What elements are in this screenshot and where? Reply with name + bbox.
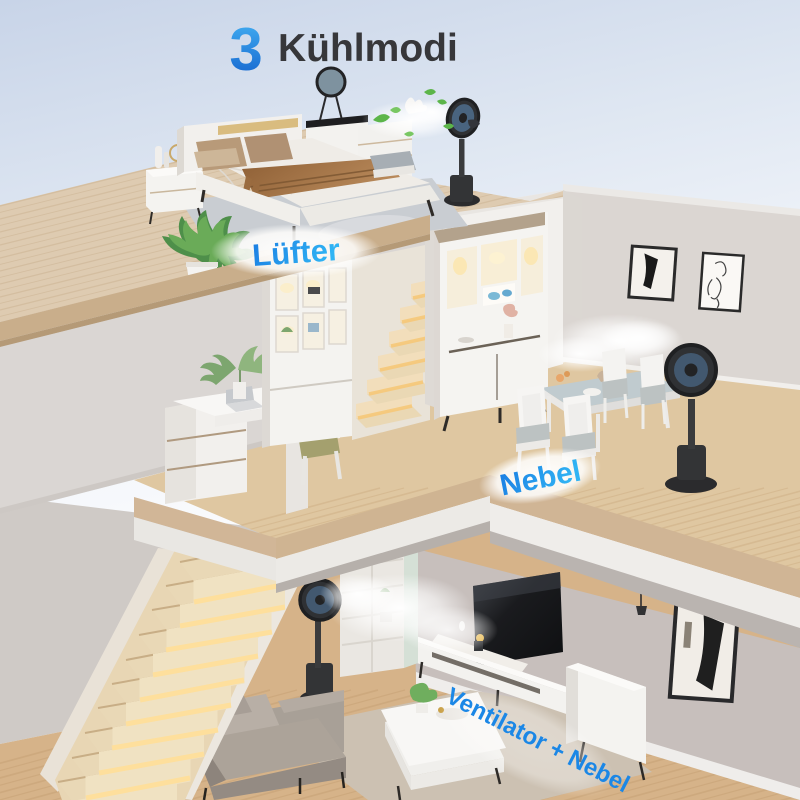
svg-text:Kühlmodi: Kühlmodi [278, 27, 458, 70]
svg-text:Lüfter: Lüfter [251, 232, 341, 273]
svg-text:3: 3 [229, 16, 262, 83]
